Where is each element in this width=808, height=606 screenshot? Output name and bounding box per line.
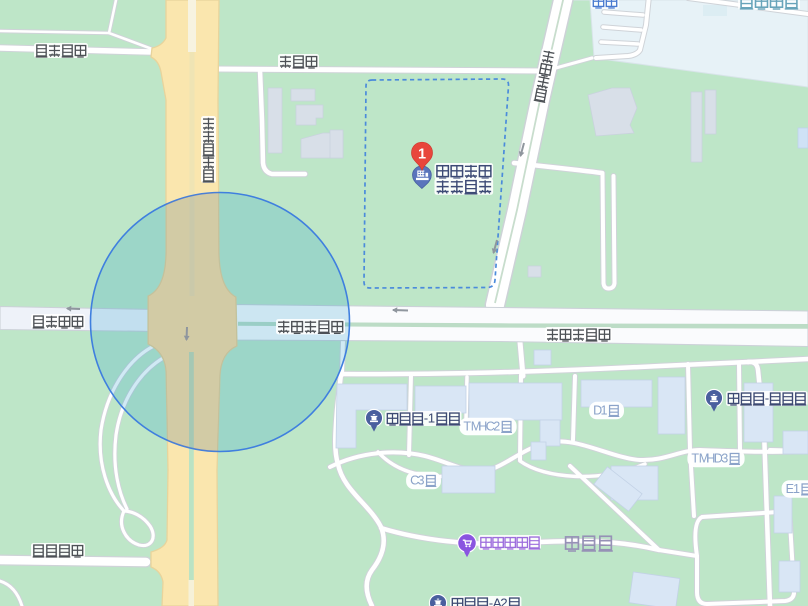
svg-text:2: 2 <box>493 420 500 434</box>
svg-text:3: 3 <box>418 474 425 488</box>
svg-text:-: - <box>765 391 769 406</box>
svg-text:1: 1 <box>793 482 800 496</box>
svg-text:1: 1 <box>418 146 426 162</box>
svg-text:1: 1 <box>601 404 608 418</box>
svg-text:1: 1 <box>428 411 435 426</box>
svg-text:2: 2 <box>500 596 507 606</box>
svg-text:3: 3 <box>721 452 728 466</box>
